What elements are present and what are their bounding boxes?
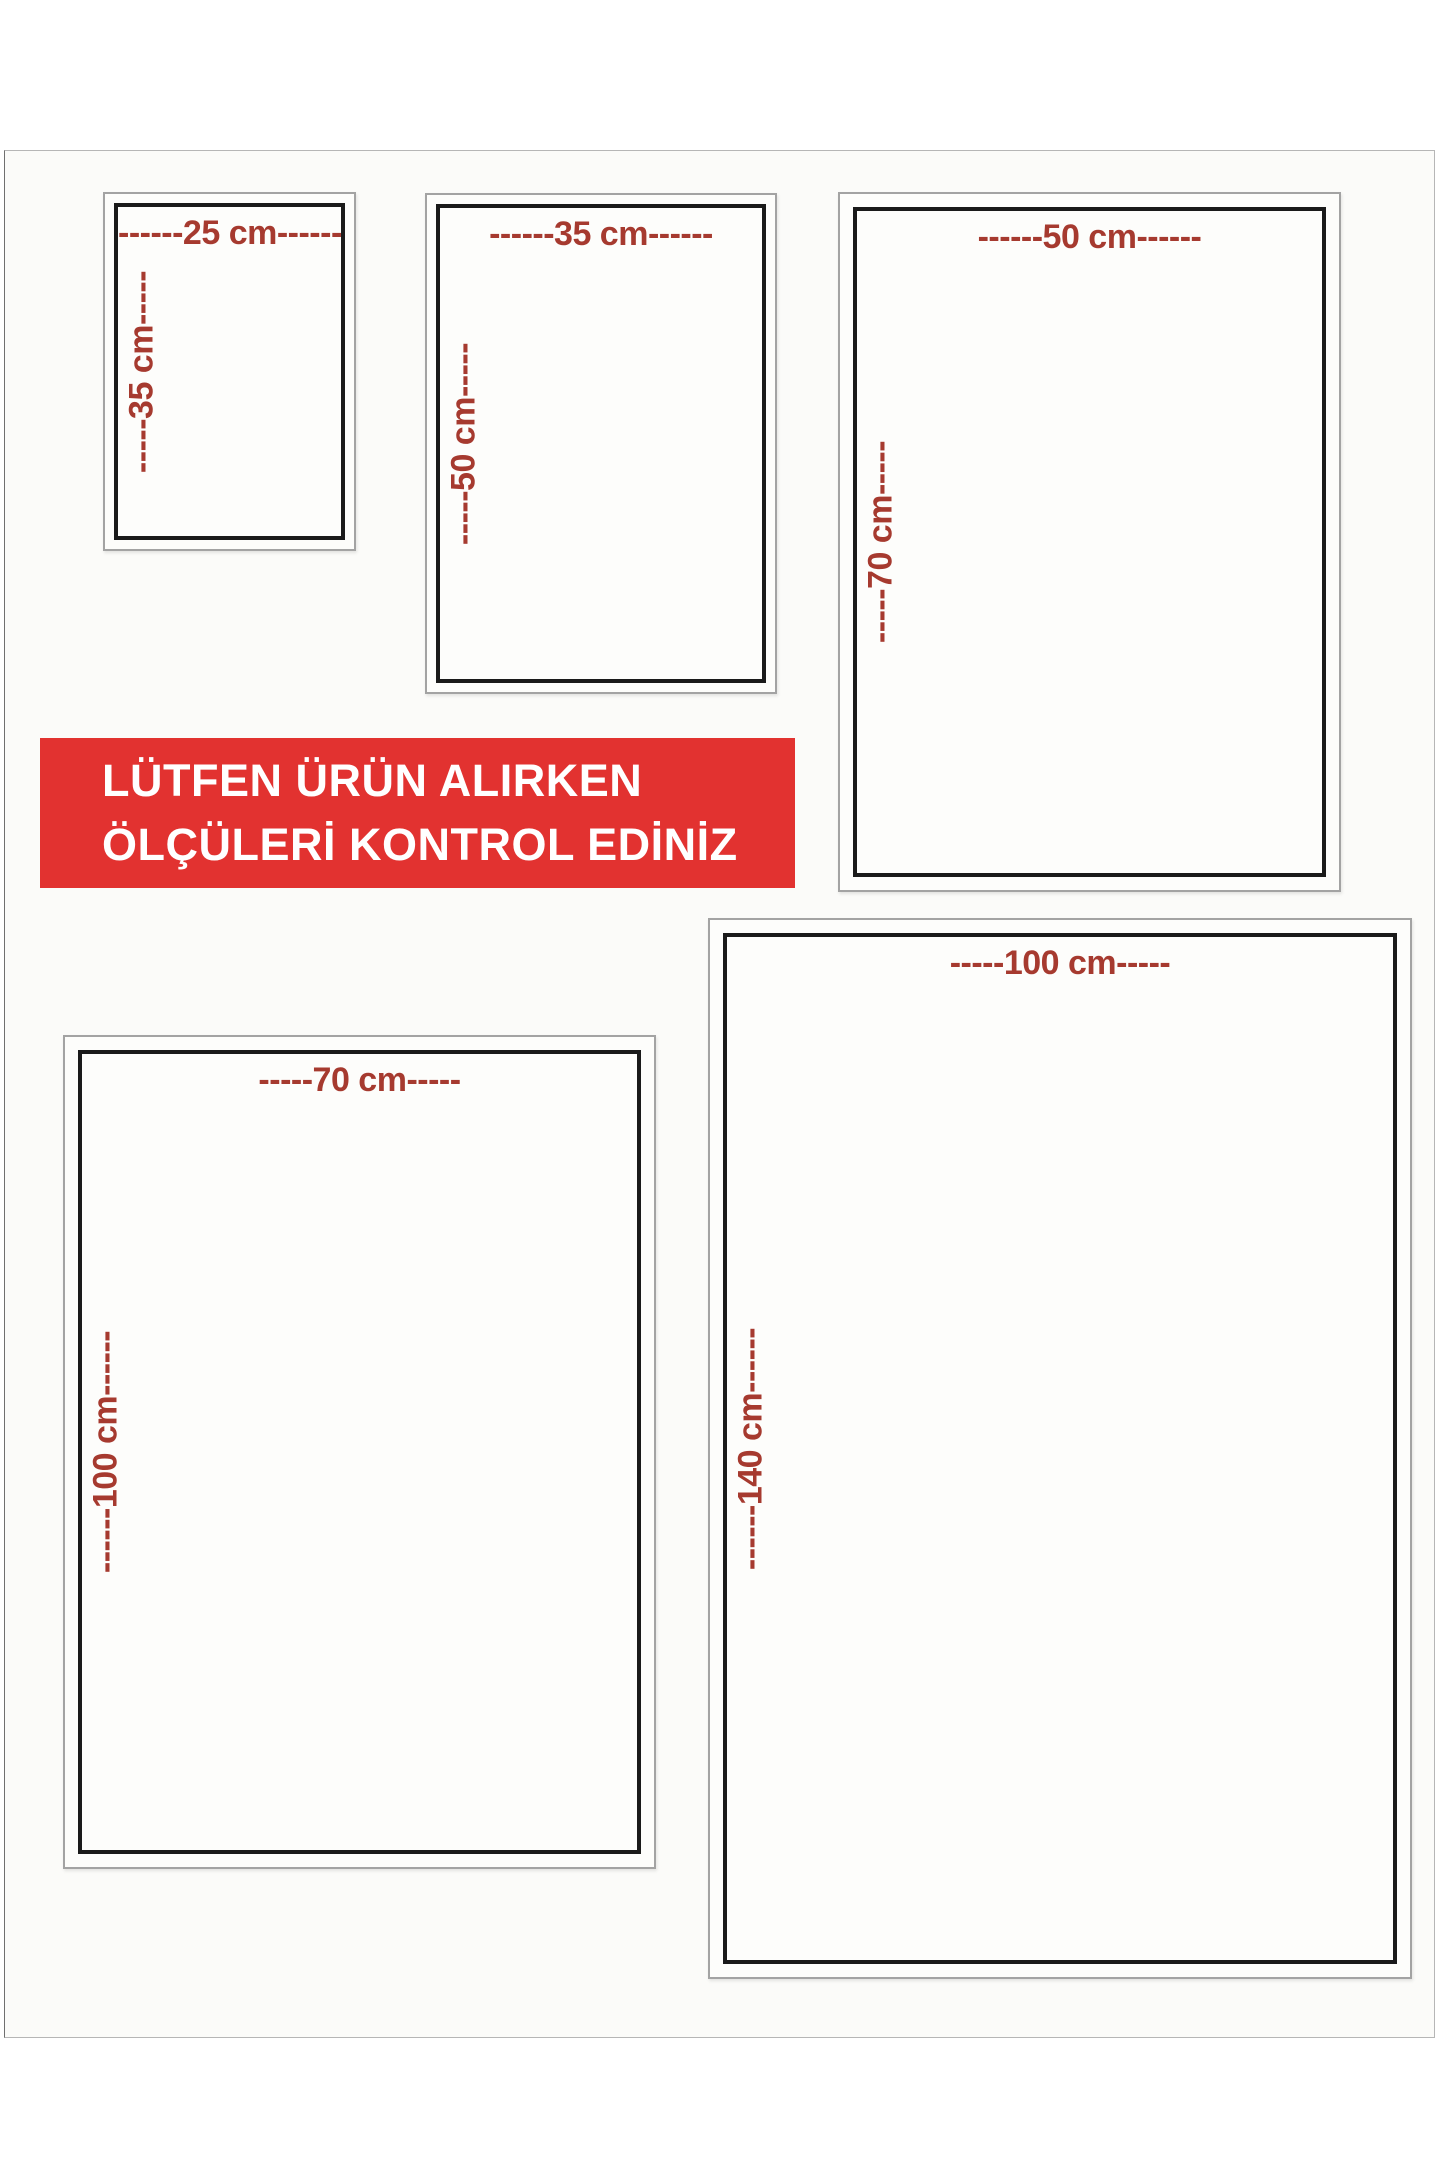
size-frame-25x35: ------25 cm------ -----35 cm-----	[103, 192, 356, 551]
size-rect-70x100: -----70 cm----- ------100 cm------	[78, 1050, 641, 1854]
size-rect-25x35: ------25 cm------ -----35 cm-----	[114, 203, 345, 540]
height-label-35cm: -----35 cm-----	[123, 270, 162, 472]
height-label-70cm: -----70 cm-----	[862, 441, 901, 643]
width-label-100cm: -----100 cm-----	[727, 944, 1393, 983]
height-label-100cm: ------100 cm------	[87, 1331, 126, 1573]
width-label-35cm: ------35 cm------	[440, 215, 762, 254]
size-frame-35x50: ------35 cm------ -----50 cm-----	[425, 193, 777, 694]
size-guide-canvas: ------25 cm------ -----35 cm----- ------…	[0, 0, 1440, 2160]
size-rect-100x140: -----100 cm----- ------140 cm------	[723, 933, 1397, 1964]
warning-banner-line-2: ÖLÇÜLERİ KONTROL EDİNİZ	[102, 813, 795, 877]
size-frame-100x140: -----100 cm----- ------140 cm------	[708, 918, 1412, 1979]
height-label-50cm: -----50 cm-----	[445, 342, 484, 544]
size-frame-70x100: -----70 cm----- ------100 cm------	[63, 1035, 656, 1869]
height-label-140cm: ------140 cm------	[732, 1327, 771, 1569]
warning-banner-line-1: LÜTFEN ÜRÜN ALIRKEN	[102, 749, 795, 813]
size-guide-page: ------25 cm------ -----35 cm----- ------…	[4, 150, 1435, 2038]
warning-banner: LÜTFEN ÜRÜN ALIRKEN ÖLÇÜLERİ KONTROL EDİ…	[40, 738, 795, 888]
size-rect-50x70: ------50 cm------ -----70 cm-----	[853, 207, 1326, 877]
size-rect-35x50: ------35 cm------ -----50 cm-----	[436, 204, 766, 683]
width-label-50cm: ------50 cm------	[857, 218, 1322, 257]
size-frame-50x70: ------50 cm------ -----70 cm-----	[838, 192, 1341, 892]
width-label-25cm: ------25 cm------	[118, 214, 341, 253]
width-label-70cm: -----70 cm-----	[82, 1061, 637, 1100]
